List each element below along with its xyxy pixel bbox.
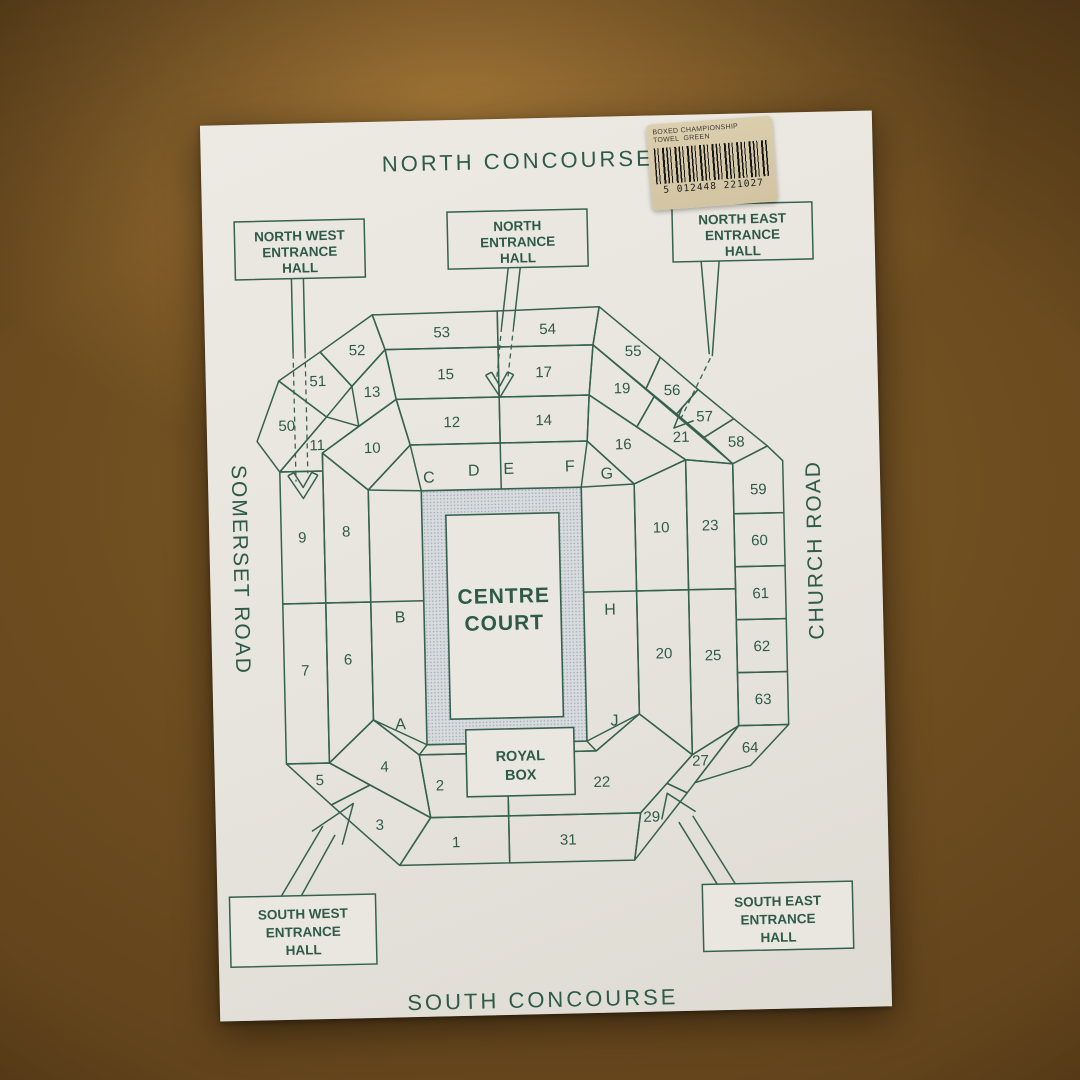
seating-plan-card: NORTH WEST ENTRANCE HALL NORTH ENTRANCE … bbox=[200, 110, 892, 1021]
gangway-label-D: D bbox=[468, 462, 480, 479]
centre-court-label2: COURT bbox=[464, 611, 544, 636]
section-label-13: 13 bbox=[363, 384, 380, 401]
gangway-label-F: F bbox=[565, 458, 575, 475]
section-label-58: 58 bbox=[728, 433, 745, 450]
south-west-route-arrow-icon bbox=[279, 803, 355, 896]
section-label-3: 3 bbox=[375, 817, 384, 834]
south-east-route-arrow-icon bbox=[661, 792, 735, 886]
north-route-line bbox=[500, 268, 521, 327]
somerset-road-label: SOMERSET ROAD bbox=[227, 465, 255, 675]
north-west-route-line bbox=[291, 278, 305, 353]
barcode-sticker: BOXED CHAMPIONSHIP TOWEL GREEN 5 012448 … bbox=[646, 116, 778, 211]
section-label-11: 11 bbox=[309, 437, 325, 454]
section-label-57: 57 bbox=[696, 408, 713, 425]
north-east-route-arrow-icon bbox=[673, 407, 693, 428]
section-region-5 bbox=[286, 762, 370, 806]
section-label-29: 29 bbox=[643, 808, 660, 825]
section-region-29 bbox=[633, 783, 689, 860]
section-label-6: 6 bbox=[344, 651, 353, 668]
section-region-59 bbox=[732, 446, 784, 514]
section-label-1: 1 bbox=[452, 834, 461, 851]
section-region-6 bbox=[326, 602, 375, 763]
section-label-20: 20 bbox=[655, 645, 672, 662]
south-west-entrance-label: SOUTH WEST bbox=[258, 906, 349, 923]
section-label-59: 59 bbox=[750, 481, 767, 498]
gangway-label-B: B bbox=[395, 609, 406, 626]
north-concourse-label: NORTH CONCOURSE bbox=[382, 145, 654, 176]
section-label-23: 23 bbox=[702, 517, 719, 534]
north-west-entrance-label3: HALL bbox=[282, 260, 318, 276]
section-label-19: 19 bbox=[613, 380, 630, 397]
north-entrance-label3: HALL bbox=[500, 250, 536, 266]
south-concourse-label: SOUTH CONCOURSE bbox=[407, 984, 679, 1015]
section-region-20 bbox=[637, 590, 693, 756]
section-label-7: 7 bbox=[301, 662, 310, 679]
gangway-label-G: G bbox=[601, 465, 614, 482]
gangway-label-E: E bbox=[503, 461, 514, 478]
north-entrance-label: NORTH bbox=[493, 218, 541, 234]
north-west-entrance-label2: ENTRANCE bbox=[262, 244, 337, 261]
section-label-2: 2 bbox=[436, 777, 445, 794]
gangway-label-A: A bbox=[395, 716, 406, 733]
section-label-61: 61 bbox=[752, 585, 769, 602]
north-east-entrance-label3: HALL bbox=[725, 243, 761, 259]
section-label-14: 14 bbox=[535, 412, 552, 429]
north-west-route-dashed bbox=[293, 353, 308, 481]
church-road-label: CHURCH ROAD bbox=[802, 460, 829, 640]
south-east-entrance-label3: HALL bbox=[760, 929, 796, 945]
section-label-17: 17 bbox=[535, 364, 552, 381]
section-label-12: 12 bbox=[443, 414, 460, 431]
south-west-entrance-label3: HALL bbox=[285, 942, 321, 958]
section-label-52: 52 bbox=[349, 342, 366, 359]
north-entrance-label2: ENTRANCE bbox=[480, 234, 555, 251]
section-label-5: 5 bbox=[315, 772, 324, 789]
south-west-entrance-label2: ENTRANCE bbox=[266, 924, 341, 941]
gangway-label-H: H bbox=[604, 601, 616, 618]
south-east-entrance-label: SOUTH EAST bbox=[734, 893, 822, 910]
section-label-63: 63 bbox=[755, 691, 772, 708]
royal-box-label2: BOX bbox=[505, 767, 537, 784]
section-label-51: 51 bbox=[309, 373, 326, 390]
section-label-27: 27 bbox=[692, 752, 709, 769]
section-label-55: 55 bbox=[625, 343, 642, 360]
north-east-route-line bbox=[701, 261, 721, 356]
section-label-22: 22 bbox=[593, 774, 610, 791]
north-east-entrance-label2: ENTRANCE bbox=[705, 227, 780, 244]
gangway-label-C: C bbox=[423, 470, 435, 487]
section-label-62: 62 bbox=[753, 638, 770, 655]
section-region-7 bbox=[283, 603, 330, 764]
section-label-4: 4 bbox=[380, 759, 389, 776]
section-label-64: 64 bbox=[742, 739, 759, 756]
section-label-15: 15 bbox=[437, 366, 454, 383]
north-west-route-arrow-icon bbox=[288, 472, 319, 499]
north-route-arrow-icon bbox=[486, 372, 515, 398]
section-label-10-east: 10 bbox=[653, 519, 670, 536]
gangway-label-J: J bbox=[610, 712, 618, 729]
section-label-60: 60 bbox=[751, 532, 768, 549]
section-label-25: 25 bbox=[705, 647, 722, 664]
section-label-8: 8 bbox=[342, 523, 351, 540]
section-label-16: 16 bbox=[615, 436, 632, 453]
north-east-entrance-label: NORTH EAST bbox=[698, 210, 787, 227]
section-label-10-northwest: 10 bbox=[364, 440, 381, 457]
section-label-50: 50 bbox=[278, 418, 295, 435]
photo-background: NORTH WEST ENTRANCE HALL NORTH ENTRANCE … bbox=[0, 0, 1080, 1080]
north-west-entrance-label: NORTH WEST bbox=[254, 227, 346, 244]
section-label-54: 54 bbox=[539, 321, 556, 338]
section-label-53: 53 bbox=[433, 324, 450, 341]
section-label-56: 56 bbox=[664, 382, 681, 399]
section-label-31: 31 bbox=[560, 831, 577, 848]
seating-plan-diagram: NORTH WEST ENTRANCE HALL NORTH ENTRANCE … bbox=[200, 110, 892, 1021]
section-label-21: 21 bbox=[673, 429, 690, 446]
centre-court-label: CENTRE bbox=[457, 584, 550, 609]
section-label-9: 9 bbox=[298, 529, 307, 546]
royal-box-label: ROYAL bbox=[495, 748, 545, 765]
south-east-entrance-label2: ENTRANCE bbox=[740, 911, 815, 928]
